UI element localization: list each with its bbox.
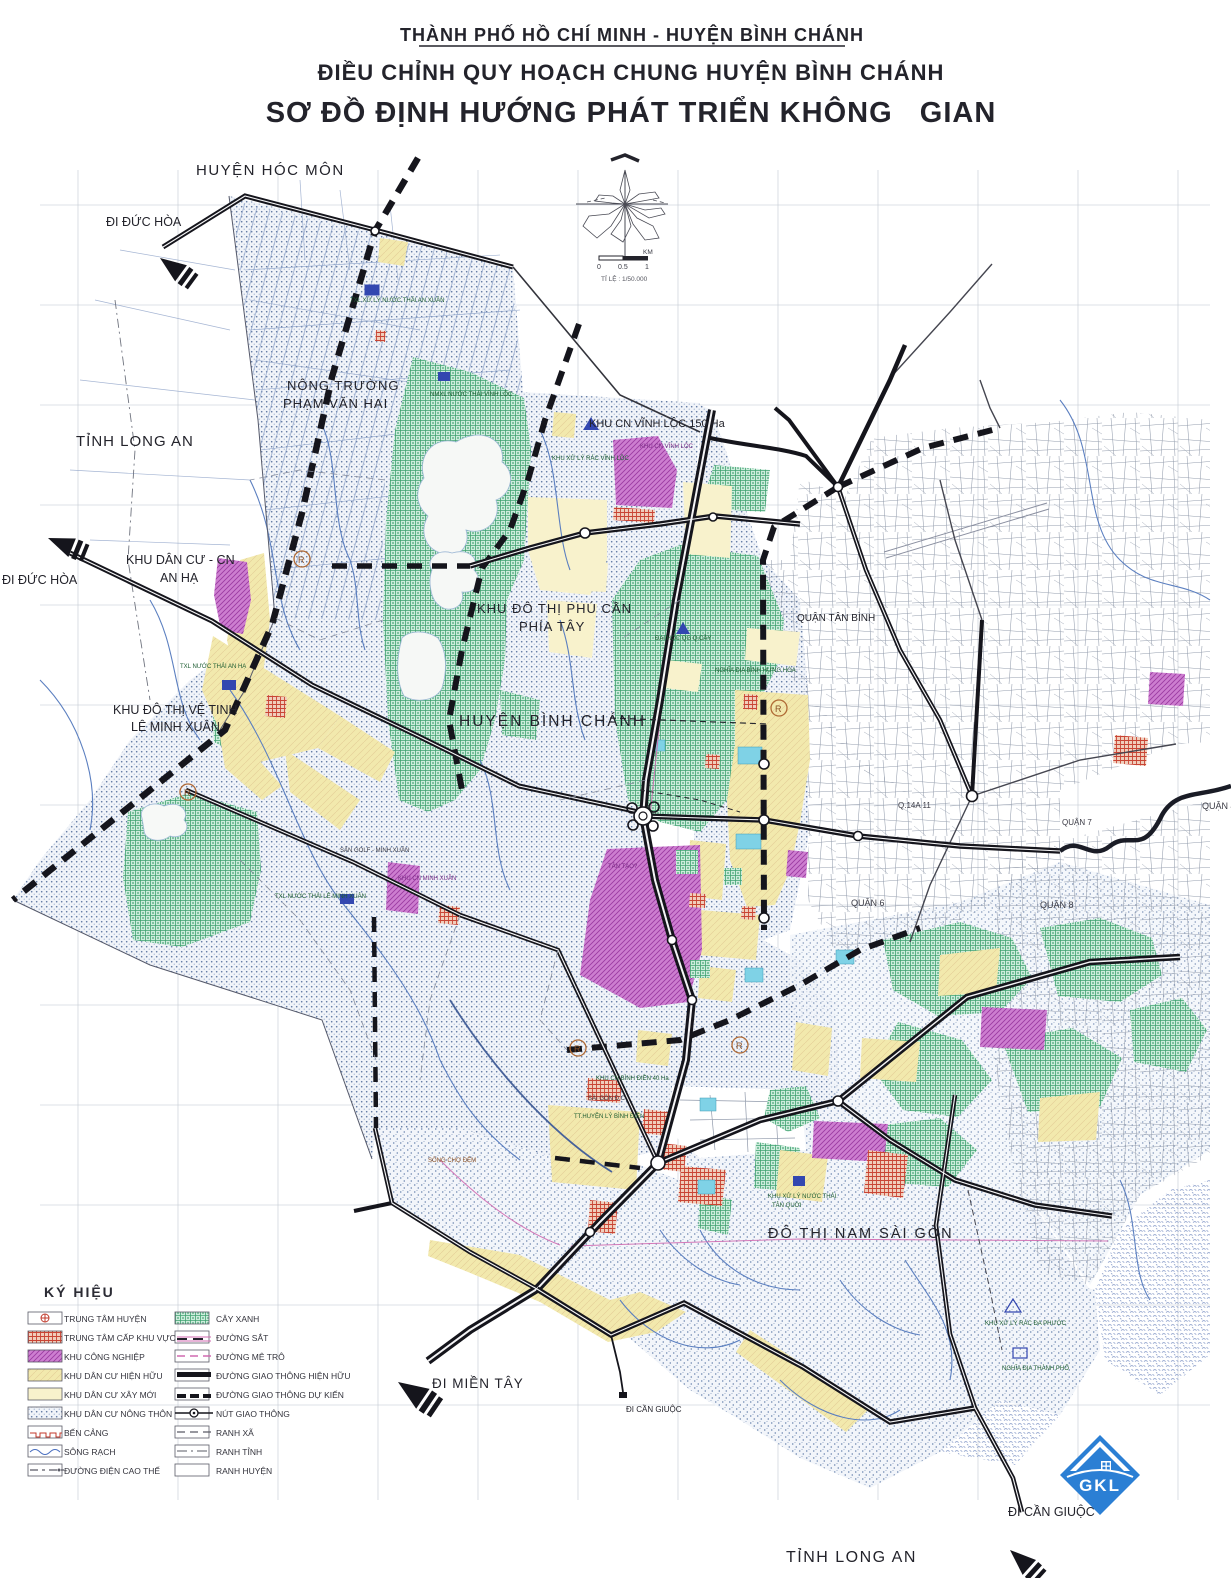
svg-text:KHU DÂN CƯ - CN: KHU DÂN CƯ - CN: [126, 552, 235, 567]
svg-text:KHU ĐÔ THỊ VỆ TINH: KHU ĐÔ THỊ VỆ TINH: [113, 702, 238, 717]
svg-text:ĐƯỜNG MÊ TRÔ: ĐƯỜNG MÊ TRÔ: [216, 1352, 285, 1362]
svg-text:KHU XỬ LÝ NƯỚC THẢI: KHU XỬ LÝ NƯỚC THẢI: [768, 1193, 837, 1200]
svg-text:NMXL NƯỚC THẢI VĨNH LỘC: NMXL NƯỚC THẢI VĨNH LỘC: [430, 391, 513, 398]
svg-text:SÔNG CHỢ ĐỆM: SÔNG CHỢ ĐỆM: [428, 1156, 476, 1164]
svg-text:NÔNG TRƯỜNG: NÔNG TRƯỜNG: [287, 378, 399, 393]
svg-text:ĐƯỜNG GIAO THÔNG DỰ KIẾN: ĐƯỜNG GIAO THÔNG DỰ KIẾN: [216, 1390, 344, 1400]
svg-text:TRUNG TÂM HUYỆN: TRUNG TÂM HUYỆN: [64, 1314, 147, 1324]
svg-text:R: R: [574, 1044, 581, 1054]
svg-text:ĐI ĐỨC HÒA: ĐI ĐỨC HÒA: [106, 214, 182, 229]
svg-text:NGHĨA ĐỊA BÌNH HƯNG HÒA: NGHĨA ĐỊA BÌNH HƯNG HÒA: [715, 667, 796, 674]
svg-text:TRUNG TÂM CẤP KHU VỰC: TRUNG TÂM CẤP KHU VỰC: [64, 1333, 176, 1343]
svg-text:ĐƯỜNG GIAO THÔNG HIỆN HỮU: ĐƯỜNG GIAO THÔNG HIỆN HỮU: [216, 1371, 351, 1381]
svg-text:CÂY XANH: CÂY XANH: [216, 1314, 259, 1324]
svg-text:QUẬN 7: QUẬN 7: [1062, 818, 1092, 827]
svg-text:ĐI CẦN GIUỘC: ĐI CẦN GIUỘC: [1008, 1504, 1095, 1519]
svg-text:SÀI GÒN Đ.C: SÀI GÒN Đ.C: [588, 1095, 626, 1102]
svg-text:ĐẠI HỌC QG Q.CẦY: ĐẠI HỌC QG Q.CẦY: [655, 635, 711, 642]
svg-text:GKL: GKL: [1079, 1476, 1121, 1495]
svg-text:KHU DÂN CƯ XÂY MỚI: KHU DÂN CƯ XÂY MỚI: [64, 1390, 156, 1400]
svg-text:KHU DÂN CƯ HIỆN HỮU: KHU DÂN CƯ HIỆN HỮU: [64, 1371, 163, 1381]
svg-text:TT.HUYỆN LÝ BÌNH ĐIỀN: TT.HUYỆN LÝ BÌNH ĐIỀN: [574, 1112, 644, 1120]
svg-text:ĐI ĐỨC HÒA: ĐI ĐỨC HÒA: [2, 572, 78, 587]
svg-text:0.5: 0.5: [618, 264, 628, 271]
svg-text:TXL XỬ LÝ NƯỚC THẢI AN XUÂN: TXL XỬ LÝ NƯỚC THẢI AN XUÂN: [350, 297, 444, 304]
svg-text:HUYỆN HÓC MÔN: HUYỆN HÓC MÔN: [196, 162, 345, 179]
svg-text:TXL NƯỚC THẢI LÊ MINH XUÂN: TXL NƯỚC THẢI LÊ MINH XUÂN: [275, 892, 366, 900]
svg-text:R: R: [736, 1041, 743, 1051]
svg-text:KHU CN VĨNH LỘC: KHU CN VĨNH LỘC: [640, 443, 694, 450]
svg-text:Q.14A 11: Q.14A 11: [898, 801, 931, 810]
svg-text:NÚT GIAO THÔNG: NÚT GIAO THÔNG: [216, 1409, 290, 1419]
svg-text:TÂN TẠO?: TÂN TẠO?: [608, 863, 638, 870]
svg-text:HUYỆN BÌNH CHÁNH: HUYỆN BÌNH CHÁNH: [459, 713, 646, 730]
svg-text:THÀNH PHỐ HỒ CHÍ MINH - HUYỆN: THÀNH PHỐ HỒ CHÍ MINH - HUYỆN BÌNH CHÁNH: [400, 24, 864, 45]
svg-text:KÝ HIỆU: KÝ HIỆU: [44, 1283, 115, 1300]
svg-text:KHU XỬ LÝ RÁC ĐA PHƯỚC: KHU XỬ LÝ RÁC ĐA PHƯỚC: [985, 1320, 1067, 1327]
svg-text:KHU CN MINH XUÂN: KHU CN MINH XUÂN: [398, 875, 456, 882]
svg-text:BẾN CẢNG: BẾN CẢNG: [64, 1427, 108, 1438]
svg-text:QUẬN TÂN BÌNH: QUẬN TÂN BÌNH: [797, 611, 875, 624]
svg-text:0: 0: [597, 264, 601, 271]
svg-text:R: R: [775, 704, 782, 714]
svg-text:LÊ MINH XUÂN: LÊ MINH XUÂN: [131, 719, 220, 734]
svg-text:SÔNG RẠCH: SÔNG RẠCH: [64, 1447, 115, 1457]
svg-text:QUẬN 4: QUẬN 4: [1202, 801, 1231, 811]
svg-text:KM: KM: [643, 249, 653, 256]
svg-text:ĐIỀU CHỈNH QUY HOẠCH CHUNG HUY: ĐIỀU CHỈNH QUY HOẠCH CHUNG HUYỆN BÌNH CH…: [318, 60, 945, 85]
svg-text:ĐƯỜNG ĐIỆN CAO THẾ: ĐƯỜNG ĐIỆN CAO THẾ: [64, 1466, 160, 1476]
svg-text:ĐƯỜNG SẮT: ĐƯỜNG SẮT: [216, 1333, 268, 1343]
svg-text:TỈ LỆ : 1/50.000: TỈ LỆ : 1/50.000: [601, 274, 648, 283]
svg-text:TỈNH LONG AN: TỈNH LONG AN: [786, 1547, 917, 1566]
svg-text:KHU CN VĨNH LỘC 150 Ha: KHU CN VĨNH LỘC 150 Ha: [589, 417, 726, 430]
svg-text:TXL NƯỚC THẢI AN HẠ: TXL NƯỚC THẢI AN HẠ: [180, 663, 246, 670]
svg-text:ĐI CẦN GIUỘC: ĐI CẦN GIUỘC: [626, 1404, 682, 1414]
svg-text:SƠ ĐỒ ĐỊNH HƯỚNG PHÁT TRIỂN KH: SƠ ĐỒ ĐỊNH HƯỚNG PHÁT TRIỂN KHÔNG GIAN: [266, 95, 997, 129]
svg-text:TỈNH LONG AN: TỈNH LONG AN: [76, 433, 194, 450]
svg-text:NGHĨA ĐỊA THÀNH PHỐ: NGHĨA ĐỊA THÀNH PHỐ: [1002, 1365, 1069, 1372]
svg-text:KHU CN BÌNH ĐIỀN 40 Ha: KHU CN BÌNH ĐIỀN 40 Ha: [596, 1075, 669, 1082]
svg-text:ĐÔ THỊ NAM SÀI GÒN: ĐÔ THỊ NAM SÀI GÒN: [768, 1225, 954, 1242]
svg-text:RANH XÃ: RANH XÃ: [216, 1428, 254, 1438]
svg-text:RANH TỈNH: RANH TỈNH: [216, 1446, 262, 1457]
svg-text:SÂN GOLF - MINH XUÂN: SÂN GOLF - MINH XUÂN: [340, 847, 409, 854]
svg-text:1: 1: [645, 264, 649, 271]
svg-text:KHU XỬ LÝ RÁC VĨNH LỘC: KHU XỬ LÝ RÁC VĨNH LỘC: [552, 455, 629, 462]
svg-text:QUẬN 6: QUẬN 6: [851, 898, 885, 908]
svg-text:R: R: [298, 555, 305, 565]
svg-text:TÂN QUỚI: TÂN QUỚI: [772, 1202, 802, 1209]
svg-text:QUẬN 8: QUẬN 8: [1040, 900, 1074, 910]
svg-text:RANH HUYỆN: RANH HUYỆN: [216, 1466, 272, 1476]
svg-text:KHU CÔNG NGHIỆP: KHU CÔNG NGHIỆP: [64, 1352, 145, 1362]
svg-text:ĐI MIỀN TÂY: ĐI MIỀN TÂY: [432, 1376, 524, 1391]
svg-text:KHU ĐÔ THỊ PHÚ CẦN: KHU ĐÔ THỊ PHÚ CẦN: [477, 601, 632, 616]
svg-text:PHÍA TÂY: PHÍA TÂY: [519, 619, 585, 634]
svg-text:KHU DÂN CƯ NÔNG THÔN: KHU DÂN CƯ NÔNG THÔN: [64, 1409, 172, 1419]
svg-text:PHẠM VĂN HAI: PHẠM VĂN HAI: [283, 396, 388, 411]
svg-text:AN HẠ: AN HẠ: [160, 571, 199, 585]
svg-text:R: R: [184, 788, 191, 798]
